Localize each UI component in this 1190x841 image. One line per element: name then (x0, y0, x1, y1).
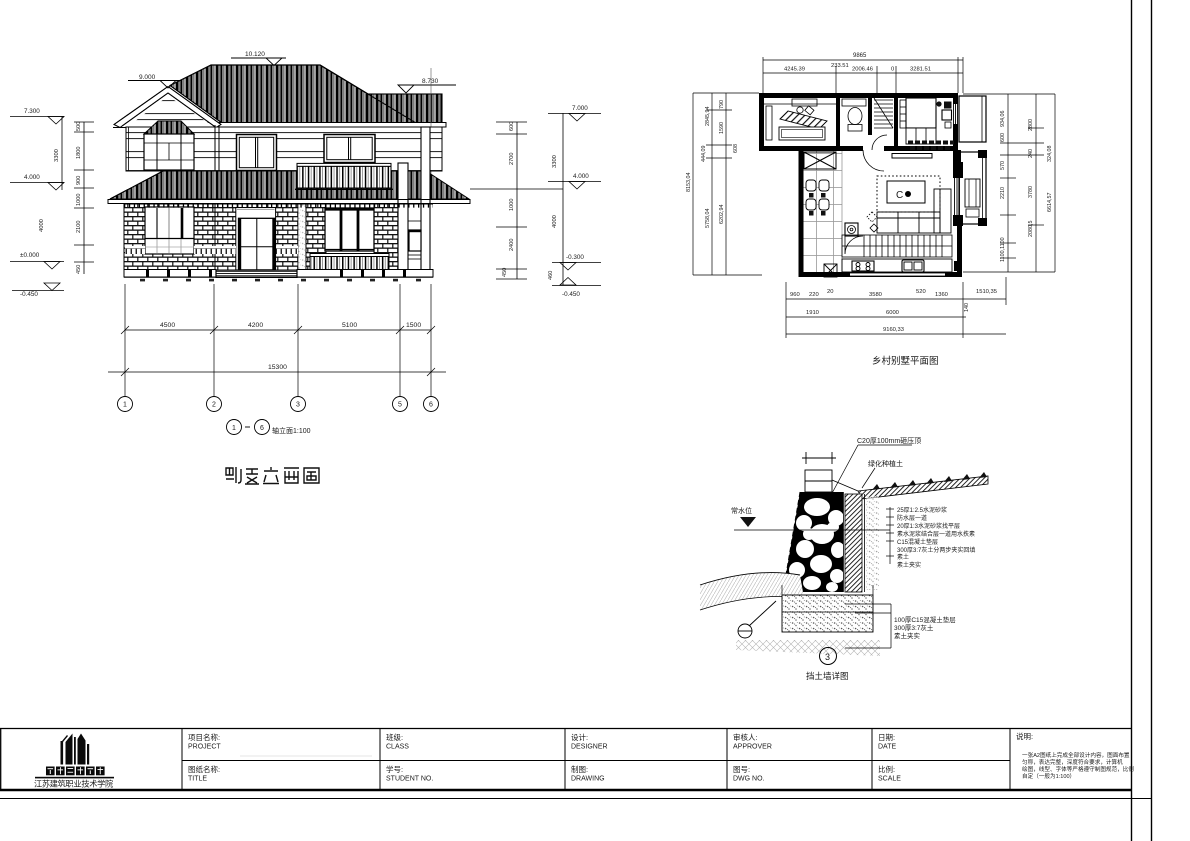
svg-text:2845,94: 2845,94 (705, 107, 711, 127)
svg-text:2006.46: 2006.46 (852, 67, 873, 73)
svg-text:素水泥浆结合层一道用水抶素: 素水泥浆结合层一道用水抶素 (897, 530, 975, 538)
svg-text:3780: 3780 (1028, 186, 1034, 198)
svg-text:570: 570 (1000, 161, 1006, 170)
svg-text:比例:: 比例: (878, 764, 895, 774)
svg-text:7.300: 7.300 (24, 108, 40, 115)
svg-text:5: 5 (398, 402, 402, 409)
svg-text:5758,04: 5758,04 (705, 209, 711, 229)
svg-text:1510,35: 1510,35 (976, 289, 997, 295)
svg-text:9160,33: 9160,33 (883, 327, 904, 333)
svg-text:2400: 2400 (509, 239, 515, 251)
svg-text:常水位: 常水位 (731, 506, 752, 515)
svg-text:100厚C15混凝土垫层: 100厚C15混凝土垫层 (894, 615, 956, 624)
svg-text:设计:: 设计: (571, 732, 588, 742)
svg-text:450: 450 (76, 265, 82, 274)
svg-text:DWG NO.: DWG NO. (733, 776, 765, 783)
svg-text:960: 960 (790, 292, 800, 298)
svg-text:1590: 1590 (719, 122, 725, 134)
svg-text:2080,5: 2080,5 (1028, 221, 1034, 238)
svg-text:934,06: 934,06 (1000, 111, 1006, 128)
svg-text:1000: 1000 (76, 194, 82, 206)
svg-text:6: 6 (429, 402, 433, 409)
svg-text:1360: 1360 (935, 292, 948, 298)
svg-text:±0.000: ±0.000 (20, 252, 40, 259)
svg-text:6000: 6000 (886, 310, 899, 316)
svg-text:STUDENT NO.: STUDENT NO. (386, 776, 433, 783)
svg-text:6: 6 (260, 425, 264, 432)
svg-text:4200: 4200 (248, 322, 263, 329)
svg-text:DATE: DATE (878, 744, 896, 751)
svg-text:C: C (896, 190, 903, 201)
svg-text:3300: 3300 (54, 149, 60, 162)
svg-text:450: 450 (502, 268, 508, 277)
svg-text:15300: 15300 (268, 364, 287, 371)
svg-text:项目名称:: 项目名称: (188, 732, 220, 742)
svg-text:审核人:: 审核人: (733, 732, 758, 742)
svg-text:1: 1 (123, 402, 127, 409)
svg-text:4.000: 4.000 (573, 173, 589, 180)
svg-text:3: 3 (296, 402, 300, 409)
svg-text:匀称，表达完整，深度符合要求，计算机: 匀称，表达完整，深度符合要求，计算机 (1022, 758, 1123, 766)
svg-text:2800: 2800 (1028, 119, 1034, 131)
svg-text:班级:: 班级: (386, 732, 403, 742)
svg-text:140: 140 (964, 303, 970, 312)
svg-text:-0.450: -0.450 (562, 291, 580, 298)
svg-text:9.000: 9.000 (139, 74, 156, 81)
svg-text:日期:: 日期: (878, 733, 895, 742)
svg-text:SCALE: SCALE (878, 776, 901, 783)
svg-text:7.000: 7.000 (572, 105, 588, 112)
svg-text:素土: 素土 (897, 553, 909, 561)
svg-text:500: 500 (76, 122, 82, 131)
svg-text:3580: 3580 (869, 292, 882, 298)
svg-text:江苏建筑职业技术学院: 江苏建筑职业技术学院 (34, 779, 113, 789)
svg-text:8.730: 8.730 (422, 78, 439, 85)
svg-text:790: 790 (719, 100, 725, 109)
svg-text:1800: 1800 (76, 147, 82, 159)
svg-text:-0.300: -0.300 (566, 254, 584, 261)
svg-text:素土夹实: 素土夹实 (897, 561, 921, 569)
svg-text:6614,57: 6614,57 (1047, 193, 1053, 213)
svg-text:自定（一般为1:100）: 自定（一般为1:100） (1022, 772, 1075, 780)
svg-text:20厚1:3水泥砂浆找平层: 20厚1:3水泥砂浆找平层 (897, 522, 960, 530)
svg-text:轴立面1:100: 轴立面1:100 (272, 426, 311, 435)
svg-text:说明:: 说明: (1016, 731, 1033, 741)
svg-text:300厚3:7灰土: 300厚3:7灰土 (894, 623, 934, 632)
svg-text:444,09: 444,09 (701, 146, 707, 163)
svg-text:1100,1100: 1100,1100 (1000, 237, 1006, 262)
svg-text:3281.51: 3281.51 (910, 67, 931, 73)
svg-text:300厚3:7灰土分两步夹实回填: 300厚3:7灰土分两步夹实回填 (897, 546, 975, 554)
svg-text:4000: 4000 (552, 215, 558, 228)
svg-text:图纸名称:: 图纸名称: (188, 764, 220, 774)
svg-text:-0.450: -0.450 (20, 291, 38, 298)
svg-text:防水层一道: 防水层一道 (897, 514, 927, 522)
svg-text:900: 900 (76, 176, 82, 185)
svg-text:1: 1 (232, 425, 236, 432)
svg-text:2210: 2210 (1000, 187, 1006, 199)
svg-text:C20厚100mm砸压顶: C20厚100mm砸压顶 (857, 437, 921, 445)
svg-text:520: 520 (916, 289, 926, 295)
svg-text:25厚1:2.5水泥砂浆: 25厚1:2.5水泥砂浆 (897, 506, 947, 514)
svg-text:2100: 2100 (76, 221, 82, 233)
svg-text:CLASS: CLASS (386, 744, 409, 751)
svg-text:TITLE: TITLE (188, 776, 207, 783)
svg-text:10.120: 10.120 (245, 51, 265, 58)
svg-text:5100: 5100 (342, 322, 357, 329)
svg-text:1500: 1500 (406, 322, 421, 329)
svg-text:8153,04: 8153,04 (686, 173, 692, 193)
svg-text:3300: 3300 (552, 155, 558, 168)
svg-text:制图:: 制图: (571, 764, 588, 774)
svg-text:挡土墙详图: 挡土墙详图 (806, 671, 849, 681)
svg-text:608: 608 (733, 144, 739, 153)
svg-text:220: 220 (809, 292, 819, 298)
svg-text:1910: 1910 (806, 310, 819, 316)
svg-text:DESIGNER: DESIGNER (571, 744, 608, 751)
svg-text:学号:: 学号: (386, 764, 403, 774)
svg-text:DRAWING: DRAWING (571, 776, 605, 783)
svg-text:240: 240 (1028, 149, 1034, 158)
svg-text:PROJECT: PROJECT (188, 744, 221, 751)
svg-text:乡村别墅平面图: 乡村别墅平面图 (872, 355, 939, 367)
svg-text:4500: 4500 (160, 322, 175, 329)
svg-text:9865: 9865 (853, 53, 867, 59)
svg-text:233.51: 233.51 (831, 63, 849, 69)
svg-text:绘图，线型、字体等严格遵守制图规范，比例: 绘图，线型、字体等严格遵守制图规范，比例 (1022, 765, 1134, 773)
svg-text:图号:: 图号: (733, 765, 750, 774)
svg-text:4000: 4000 (39, 219, 45, 232)
svg-text:6202,94: 6202,94 (719, 205, 725, 225)
svg-text:600: 600 (509, 122, 515, 131)
svg-text:600: 600 (1000, 133, 1006, 142)
svg-text:4.000: 4.000 (24, 174, 40, 181)
svg-text:0: 0 (891, 67, 894, 73)
svg-text:324,08: 324,08 (1047, 146, 1053, 163)
svg-text:2700: 2700 (509, 153, 515, 165)
svg-text:APPROVER: APPROVER (733, 744, 772, 751)
svg-text:460: 460 (548, 271, 554, 280)
svg-text:4245.39: 4245.39 (784, 67, 805, 73)
svg-text:C15混凝土垫层: C15混凝土垫层 (897, 538, 938, 546)
svg-text:素土夹实: 素土夹实 (894, 631, 921, 640)
svg-text:一张A2图纸上完成全部设计内容，图面布置: 一张A2图纸上完成全部设计内容，图面布置 (1022, 751, 1130, 759)
svg-text:3: 3 (825, 652, 830, 662)
svg-text:20: 20 (827, 289, 833, 295)
svg-text:绿化种植土: 绿化种植土 (868, 459, 903, 468)
svg-text:1000: 1000 (509, 199, 515, 211)
svg-text:2: 2 (212, 402, 216, 409)
